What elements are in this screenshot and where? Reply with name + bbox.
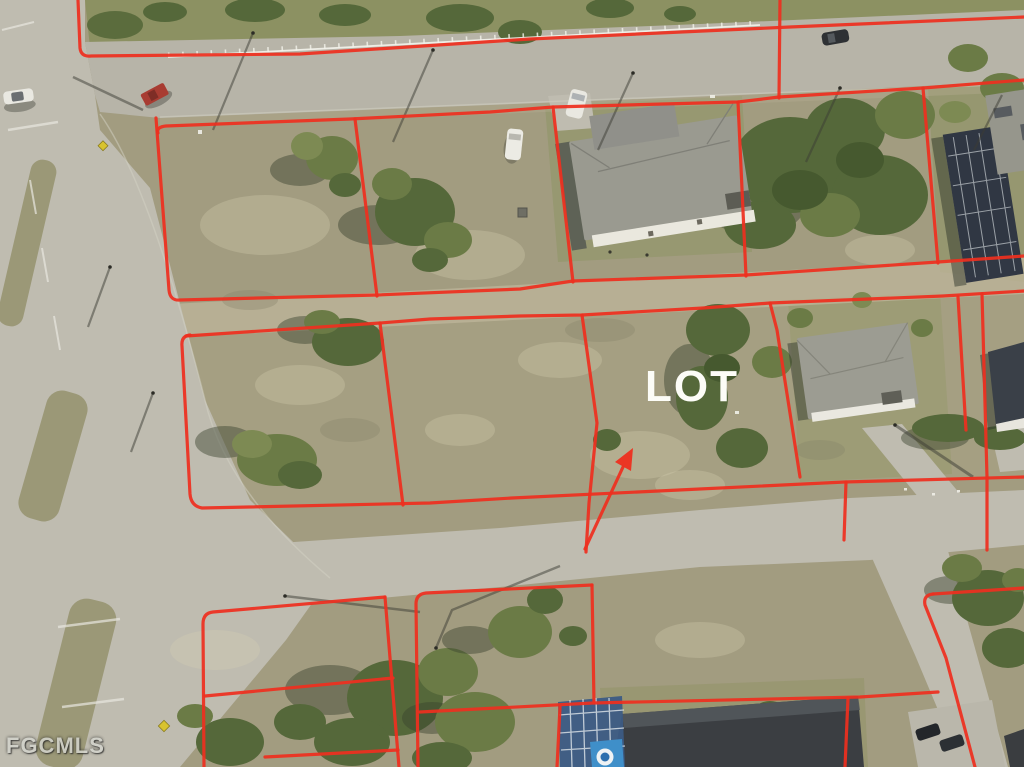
aerial-map-canvas: LOT [0, 0, 1024, 767]
small-shed [518, 208, 527, 217]
lot-label: LOT [645, 362, 739, 411]
mls-watermark: FGCMLS [6, 733, 105, 759]
house-east [787, 323, 920, 424]
aerial-listing-photo: LOT FGCMLS [0, 0, 1024, 767]
